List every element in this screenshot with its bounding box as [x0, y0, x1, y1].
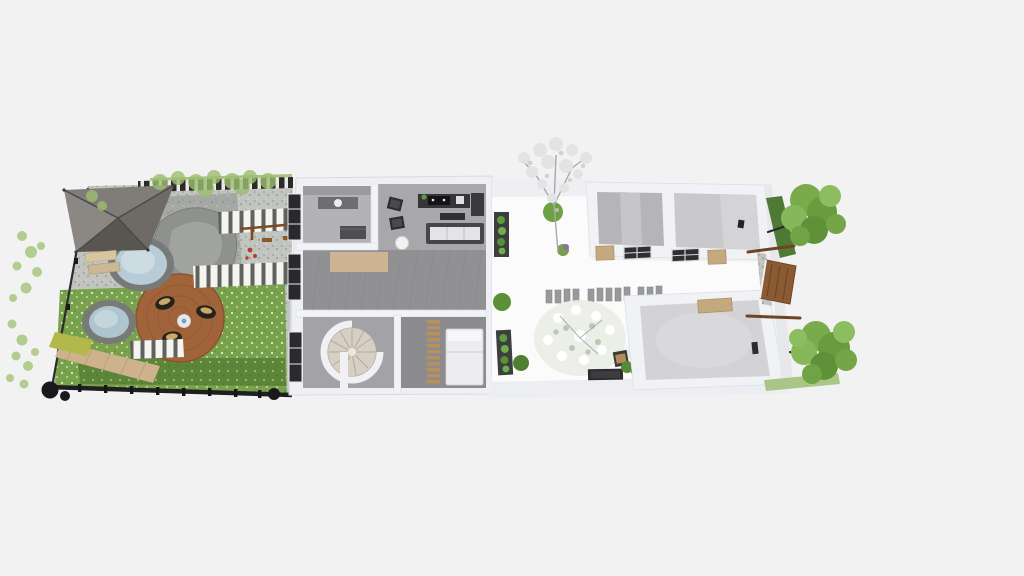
gate-step-1	[262, 238, 272, 242]
courtyard-bush-3	[543, 202, 563, 222]
annex-door-2	[708, 250, 726, 265]
deck-table-cup	[182, 319, 187, 324]
annex3-door	[698, 298, 733, 313]
entrance-door	[760, 260, 796, 304]
pond-lower	[82, 300, 136, 344]
doormat	[588, 369, 623, 381]
window-icon	[289, 332, 302, 382]
annex-window-2	[672, 248, 699, 261]
annex-door-1	[596, 246, 614, 261]
coffee-table	[440, 213, 465, 220]
wall-fixture	[737, 220, 744, 229]
stepping-path-middle	[193, 262, 289, 288]
annex-room-3	[624, 290, 784, 390]
sofa	[426, 223, 484, 244]
kitchen-plant	[421, 194, 426, 199]
stepping-path-upper	[218, 208, 293, 234]
annex-top-rooms	[586, 182, 772, 264]
bedroom	[401, 317, 486, 388]
sink	[456, 196, 464, 204]
courtyard-bush-1	[493, 293, 511, 311]
living-room	[378, 184, 486, 250]
stove	[428, 196, 450, 205]
tv-cabinet	[471, 193, 484, 216]
floorplan-render-canvas	[0, 0, 1024, 576]
annex-room-2	[674, 193, 760, 250]
purple-flower-plant	[557, 244, 569, 256]
wall-planter-1	[494, 212, 509, 257]
bathroom	[303, 186, 371, 243]
main-house	[288, 176, 492, 395]
annex-window-1	[624, 246, 651, 259]
annex-room-1	[597, 192, 664, 246]
facade-windows-west	[288, 194, 302, 382]
courtyard-bush-2	[513, 355, 529, 371]
stair-room	[303, 317, 394, 389]
window-icon	[288, 194, 301, 240]
hall-rug	[330, 252, 388, 272]
wall-planter-2	[496, 330, 513, 376]
hall	[303, 250, 486, 310]
window-icon	[288, 254, 301, 300]
bed	[446, 329, 483, 385]
floorplan-svg	[0, 0, 1024, 576]
dining-chair-2	[389, 216, 405, 230]
stepping-path-lower	[130, 339, 184, 359]
annex3-fixture	[751, 342, 758, 355]
side-table	[396, 237, 409, 250]
blossom-shrub-center	[534, 300, 626, 376]
